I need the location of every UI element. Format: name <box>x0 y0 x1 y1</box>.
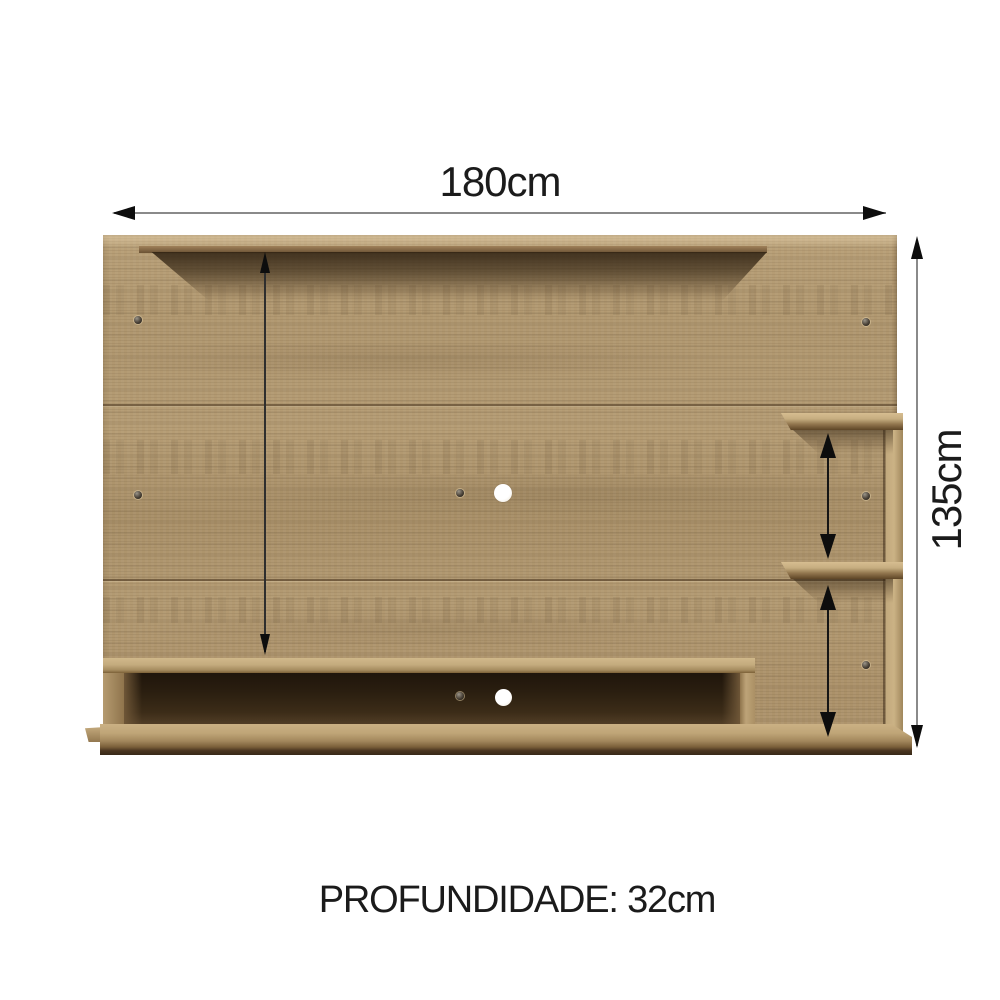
width-dimension-line <box>114 212 886 214</box>
screw-hole <box>134 316 142 324</box>
cable-hole <box>495 689 512 706</box>
screw-hole <box>862 492 870 500</box>
tv-panel-back <box>103 235 897 753</box>
arrowhead-up-icon <box>820 433 836 458</box>
right-shelf-upper <box>781 413 903 430</box>
top-shelf <box>139 246 767 253</box>
height-dimension-line <box>916 240 918 746</box>
arrowhead-right-icon <box>863 206 886 220</box>
screw-hole <box>862 318 870 326</box>
screw-hole <box>134 491 142 499</box>
arrowhead-down-icon <box>260 634 270 655</box>
wood-grain-band <box>103 440 897 474</box>
arrowhead-down-icon <box>820 534 836 559</box>
screw-hole <box>456 692 464 700</box>
product-dimension-diagram: 180cm <box>0 0 1000 1000</box>
screw-hole <box>456 489 464 497</box>
base-shelf <box>100 724 912 755</box>
arrowhead-up-icon <box>820 585 836 610</box>
screw-hole <box>862 661 870 669</box>
width-dimension-label: 180cm <box>350 158 650 206</box>
arrowhead-left-icon <box>112 206 135 220</box>
top-shelf-shadow <box>139 252 767 300</box>
arrowhead-up-icon <box>911 236 923 259</box>
right-shelf-lower <box>781 562 903 579</box>
panel-seam-upper <box>103 404 897 406</box>
wood-grain-band <box>103 597 897 623</box>
inner-height-dimension-line <box>264 256 266 652</box>
arrowhead-down-icon <box>820 712 836 737</box>
height-dimension-label: 135cm <box>925 420 969 560</box>
cable-hole <box>494 484 512 502</box>
arrowhead-up-icon <box>260 252 270 273</box>
arrowhead-down-icon <box>911 725 923 748</box>
panel-seam-lower <box>103 579 897 581</box>
bottom-niche-shelf <box>103 658 755 673</box>
depth-caption: PROFUNDIDADE: 32cm <box>250 879 784 922</box>
